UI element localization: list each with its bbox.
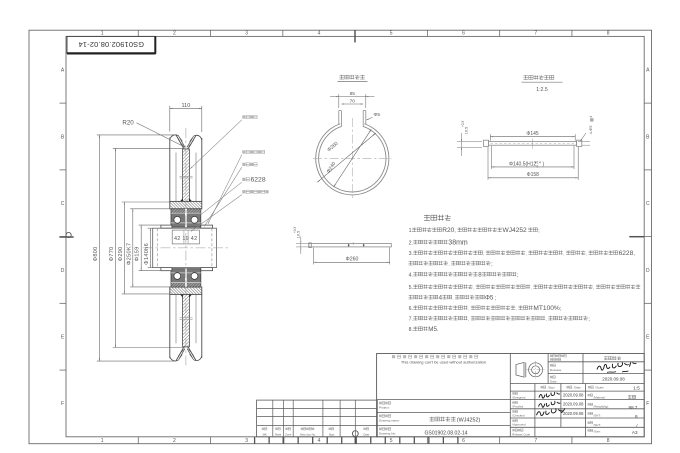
svg-text:,: , — [468, 316, 469, 321]
svg-text:D: D — [646, 268, 650, 274]
svg-text:Φ5: Φ5 — [485, 294, 494, 301]
svg-text:,: , — [526, 251, 527, 256]
svg-text:Φ800: Φ800 — [93, 246, 99, 261]
svg-text:/SHT:: /SHT: — [594, 414, 601, 418]
svg-text:C: C — [61, 201, 65, 207]
svg-text:2020.09.08: 2020.09.08 — [563, 393, 584, 398]
svg-text:Φ250K7: Φ250K7 — [126, 243, 132, 265]
svg-text:4: 4 — [439, 294, 443, 301]
svg-text:;: ; — [464, 240, 465, 246]
svg-text:New doc No.: New doc No. — [300, 432, 316, 436]
svg-text:/Approved: /Approved — [512, 423, 526, 427]
svg-text:F: F — [61, 401, 64, 407]
svg-text:GS01902.08.02-14: GS01902.08.02-14 — [424, 430, 467, 436]
svg-text:,: , — [473, 285, 474, 290]
svg-text:(WJ4252): (WJ4252) — [457, 417, 481, 423]
svg-text:+0.3: +0.3 — [461, 121, 465, 128]
svg-text:2.: 2. — [409, 240, 413, 246]
svg-text:5: 5 — [390, 438, 393, 444]
svg-text:4.: 4. — [409, 272, 413, 278]
svg-text:Φ159: Φ159 — [135, 246, 141, 261]
svg-text:Date: Date — [363, 432, 369, 436]
svg-text:6: 6 — [462, 31, 465, 37]
svg-text:4-Φ5: 4-Φ5 — [588, 126, 593, 135]
svg-text:,: , — [452, 295, 453, 300]
svg-text:6228: 6228 — [619, 250, 634, 257]
svg-text:,: , — [483, 251, 484, 256]
svg-text:Project:: Project: — [379, 406, 390, 410]
svg-text:4: 4 — [318, 438, 321, 444]
svg-text:1.: 1. — [409, 228, 413, 234]
svg-text:+0.3: +0.3 — [293, 227, 297, 234]
svg-text:F: F — [646, 401, 649, 407]
svg-text:Φ290: Φ290 — [118, 246, 124, 261]
svg-text:8.: 8. — [409, 327, 413, 333]
svg-text:6: 6 — [462, 438, 465, 444]
svg-text:;: ; — [491, 261, 492, 267]
svg-text:Zone: Zone — [285, 432, 292, 436]
svg-text:,: , — [634, 251, 635, 257]
svg-text:Φ140.5(H12: Φ140.5(H12 — [509, 161, 537, 167]
svg-text:/Material:: /Material: — [594, 395, 606, 399]
svg-text:This drawing can't be used wit: This drawing can't be used without autho… — [401, 360, 486, 365]
svg-text:GS01902.08.02-14: GS01902.08.02-14 — [78, 40, 144, 49]
svg-text:8: 8 — [607, 438, 610, 444]
svg-text:4: 4 — [318, 31, 321, 37]
svg-text:Φ140h6: Φ140h6 — [144, 243, 150, 265]
svg-text:Φ158: Φ158 — [527, 172, 540, 178]
svg-text:5: 5 — [390, 31, 393, 37]
svg-text:C: C — [646, 201, 650, 207]
svg-text:8: 8 — [635, 414, 638, 419]
svg-text:3: 3 — [245, 31, 248, 37]
svg-text:/Sign: /Sign — [548, 386, 555, 390]
svg-text:MK: MK — [263, 432, 267, 436]
svg-text:Φ145: Φ145 — [526, 131, 539, 137]
svg-text:,: , — [593, 285, 594, 290]
svg-text:/Weight(kg):: /Weight(kg): — [594, 405, 610, 409]
svg-text:,: , — [468, 306, 469, 311]
svg-text:2: 2 — [173, 438, 176, 444]
svg-text:7.: 7. — [409, 316, 413, 322]
svg-text:D: D — [61, 268, 65, 274]
svg-text:,: , — [563, 251, 564, 256]
svg-text:8: 8 — [478, 271, 482, 278]
svg-text:Φ260: Φ260 — [346, 256, 359, 262]
svg-text:/Designed: /Designed — [512, 395, 525, 399]
svg-text:,: , — [586, 251, 587, 256]
svg-text:M5.: M5. — [428, 326, 439, 333]
svg-text:/Checked: /Checked — [512, 414, 525, 418]
svg-text:,: , — [454, 228, 455, 234]
svg-text:6.: 6. — [409, 306, 413, 312]
svg-text:Drawing name:: Drawing name: — [379, 419, 400, 423]
svg-text:Sign: Sign — [329, 432, 335, 436]
svg-text:3: 3 — [245, 438, 248, 444]
svg-text:1:2.5: 1:2.5 — [536, 87, 548, 93]
svg-text:Mark: Mark — [275, 432, 282, 436]
svg-text:/Proofed: /Proofed — [512, 405, 523, 409]
svg-text:;: ; — [495, 295, 496, 301]
svg-text:Release: Release — [550, 368, 562, 372]
svg-text:7: 7 — [534, 31, 537, 37]
svg-text:/Date: /Date — [574, 386, 582, 390]
svg-text:,: , — [546, 316, 547, 321]
svg-text:2020.09.08: 2020.09.08 — [563, 402, 584, 407]
svg-text:R20: R20 — [442, 227, 454, 234]
svg-text:Date: Date — [550, 379, 557, 383]
svg-text:2: 2 — [173, 31, 176, 37]
svg-text:Φ770: Φ770 — [109, 246, 115, 261]
svg-text:/Size:: /Size: — [594, 430, 601, 434]
svg-text:1:5: 1:5 — [633, 386, 640, 392]
svg-text:MT100%: MT100% — [533, 305, 560, 312]
svg-text:2020.09.08: 2020.09.08 — [563, 411, 584, 416]
svg-text:6228: 6228 — [251, 177, 266, 184]
svg-text:;: ; — [538, 228, 539, 234]
svg-text:WJ4252: WJ4252 — [503, 227, 528, 234]
svg-text:85: 85 — [350, 91, 356, 97]
svg-text:2020.09.08: 2020.09.08 — [602, 377, 625, 382]
svg-text:110: 110 — [182, 103, 191, 109]
svg-text:1: 1 — [101, 31, 104, 37]
svg-text:/Scale: /Scale — [595, 386, 604, 390]
svg-text:Release Code: Release Code — [512, 432, 530, 436]
svg-text:,: , — [516, 306, 517, 311]
svg-text:,: , — [449, 261, 450, 266]
svg-text:98.7: 98.7 — [629, 405, 638, 410]
svg-text:,: , — [531, 285, 532, 290]
svg-text:1: 1 — [101, 438, 104, 444]
svg-text:R20: R20 — [122, 120, 134, 127]
svg-text:Φ5: Φ5 — [374, 112, 381, 118]
svg-text:7: 7 — [534, 438, 537, 444]
svg-text:;: ; — [588, 316, 589, 322]
svg-text:5.: 5. — [409, 285, 413, 291]
svg-text:Drawing No:: Drawing No: — [379, 431, 396, 435]
svg-text:/SHT:: /SHT: — [594, 423, 601, 427]
svg-text:8: 8 — [607, 31, 610, 37]
svg-text:3.: 3. — [409, 251, 413, 257]
svg-text:;: ; — [560, 306, 561, 312]
svg-text:A3: A3 — [632, 430, 638, 435]
svg-text:0: 0 — [537, 164, 539, 168]
svg-text:;: ; — [517, 272, 518, 278]
svg-text:70: 70 — [350, 99, 356, 105]
